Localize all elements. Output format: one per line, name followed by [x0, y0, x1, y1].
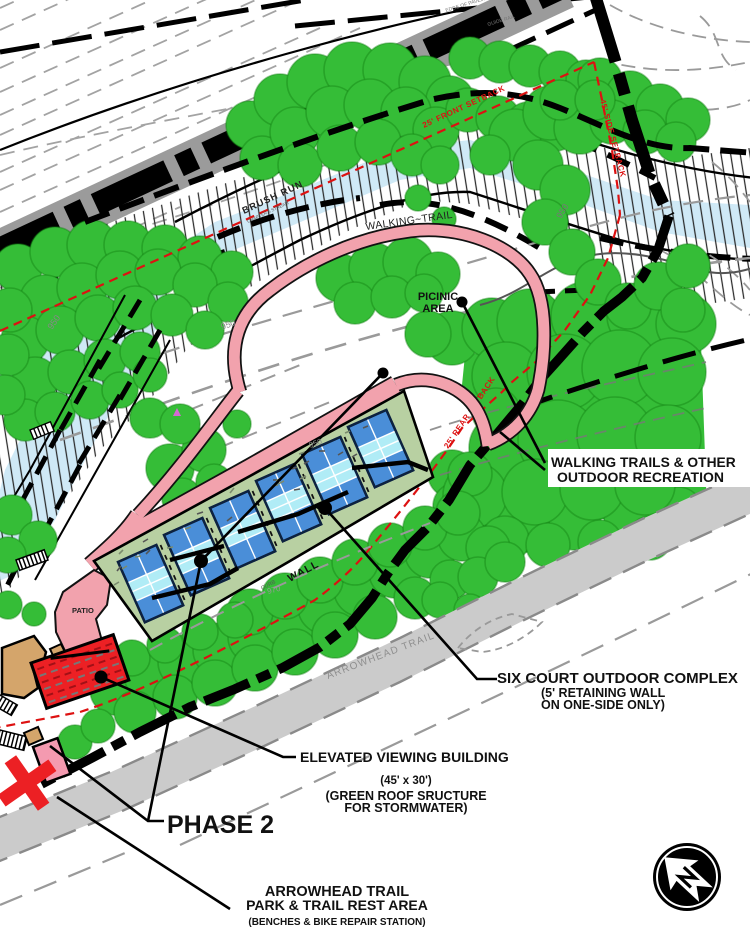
svg-text:PHASE 2: PHASE 2 [167, 811, 274, 839]
svg-text:OUTDOOR RECREATION: OUTDOOR RECREATION [557, 469, 724, 485]
svg-text:AREA: AREA [422, 303, 453, 315]
svg-text:SIX COURT OUTDOOR COMPLEX: SIX COURT OUTDOOR COMPLEX [497, 670, 738, 687]
svg-text:FOR STORMWATER): FOR STORMWATER) [344, 801, 467, 815]
svg-text:ELEVATED VIEWING BUILDING: ELEVATED VIEWING BUILDING [300, 749, 509, 765]
svg-text:WALKING TRAILS & OTHER: WALKING TRAILS & OTHER [551, 455, 736, 470]
svg-text:(45' x 30'): (45' x 30') [380, 775, 432, 787]
svg-text:PICINIC: PICINIC [418, 291, 458, 303]
svg-text:PARK & TRAIL REST AREA: PARK & TRAIL REST AREA [246, 897, 428, 913]
svg-text:(BENCHES & BIKE REPAIR STATION: (BENCHES & BIKE REPAIR STATION) [248, 917, 425, 928]
svg-text:ON ONE-SIDE ONLY): ON ONE-SIDE ONLY) [541, 698, 665, 712]
svg-text:PATIO: PATIO [72, 606, 94, 615]
